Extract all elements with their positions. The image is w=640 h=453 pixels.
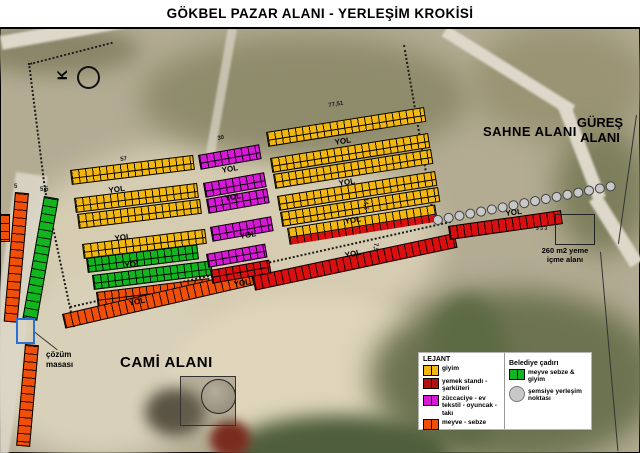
legend-item-label: züccaciye - ev tekstil - oyuncak - takı <box>442 395 500 417</box>
giyim-swatch <box>423 365 439 376</box>
legend: LEJANT giyim yemek standı - şarküteri zü… <box>418 352 592 430</box>
label-yeme-icme: 260 m2 yeme içme alanı <box>541 246 589 265</box>
yemek-swatch <box>423 378 439 389</box>
umbrella-point-icon <box>605 181 617 193</box>
legend-item-label: giyim <box>442 365 500 372</box>
umbrella-point-icon <box>551 191 563 203</box>
page-title: GÖKBEL PAZAR ALANI - YERLEŞİM KROKİSİ <box>167 6 474 21</box>
belediye-green-swatch <box>509 369 525 380</box>
legend-item-zuccaciye: züccaciye - ev tekstil - oyuncak - takı <box>423 395 500 417</box>
area-label-sahne: SAHNE ALANI <box>483 124 577 139</box>
umbrella-point-icon <box>486 204 498 216</box>
legend-item-yemek: yemek standı - şarküteri <box>423 378 500 393</box>
boundary-dots <box>28 63 46 190</box>
legend-item-label: yemek standı - şarküteri <box>442 378 500 393</box>
umbrella-point-swatch <box>509 386 525 402</box>
area-label-gures: GÜREŞ ALANI <box>572 116 628 146</box>
legend-item-label: şemsiye yerleşim noktası <box>528 388 587 403</box>
dimension-label: 3 3 3 <box>536 226 547 232</box>
site-plan-map: K YOL YOL YOL YOL YOL YOL YOL YOL YOL YO… <box>0 0 640 453</box>
umbrella-point-icon <box>454 210 466 222</box>
legend-left-column: LEJANT giyim yemek standı - şarküteri zü… <box>419 353 505 429</box>
eating-area-outline <box>555 214 595 245</box>
dimension-label: 5 <box>14 184 17 190</box>
umbrella-point-icon <box>572 187 584 199</box>
umbrella-point-icon <box>529 195 541 207</box>
zuccaciye-swatch <box>423 395 439 406</box>
mosque-dome <box>201 379 236 414</box>
legend-right-column: Belediye çadırı meyve sebze & giyim şems… <box>505 353 591 429</box>
dimension-label: 14,5 <box>362 198 368 210</box>
umbrella-point-icon <box>562 189 574 201</box>
stall-column-orange <box>0 214 10 242</box>
legend-right-title: Belediye çadırı <box>509 360 587 367</box>
umbrella-point-icon <box>594 183 606 195</box>
dimension-label: 5,5 <box>40 187 48 193</box>
compass-icon <box>77 66 100 89</box>
legend-item-semsiye: şemsiye yerleşim noktası <box>509 386 587 403</box>
title-bar: GÖKBEL PAZAR ALANI - YERLEŞİM KROKİSİ <box>0 0 640 29</box>
legend-item-label: meyve sebze & giyim <box>528 369 587 384</box>
legend-item-label: meyve - sebze <box>442 419 500 426</box>
meyve-swatch <box>423 419 439 430</box>
umbrella-point-icon <box>443 212 455 224</box>
legend-item-giyim: giyim <box>423 365 500 376</box>
label-cozum-masasi: çözüm masası <box>46 350 84 371</box>
legend-title: LEJANT <box>423 356 500 363</box>
umbrella-point-icon <box>540 193 552 205</box>
north-label: K <box>54 70 70 80</box>
dimension-label: 7,5 <box>372 243 378 251</box>
umbrella-point-icon <box>464 208 476 220</box>
legend-item-belediye-green: meyve sebze & giyim <box>509 369 587 384</box>
legend-item-meyve: meyve - sebze <box>423 419 500 430</box>
dimension-label: 57 <box>120 156 127 163</box>
umbrella-point-icon <box>432 214 444 226</box>
area-label-cami: CAMİ ALANI <box>120 354 213 371</box>
cozum-masasi-outline <box>16 318 35 344</box>
dimension-label: 30 <box>217 135 225 142</box>
umbrella-point-icon <box>583 185 595 197</box>
umbrella-point-icon <box>475 206 487 218</box>
